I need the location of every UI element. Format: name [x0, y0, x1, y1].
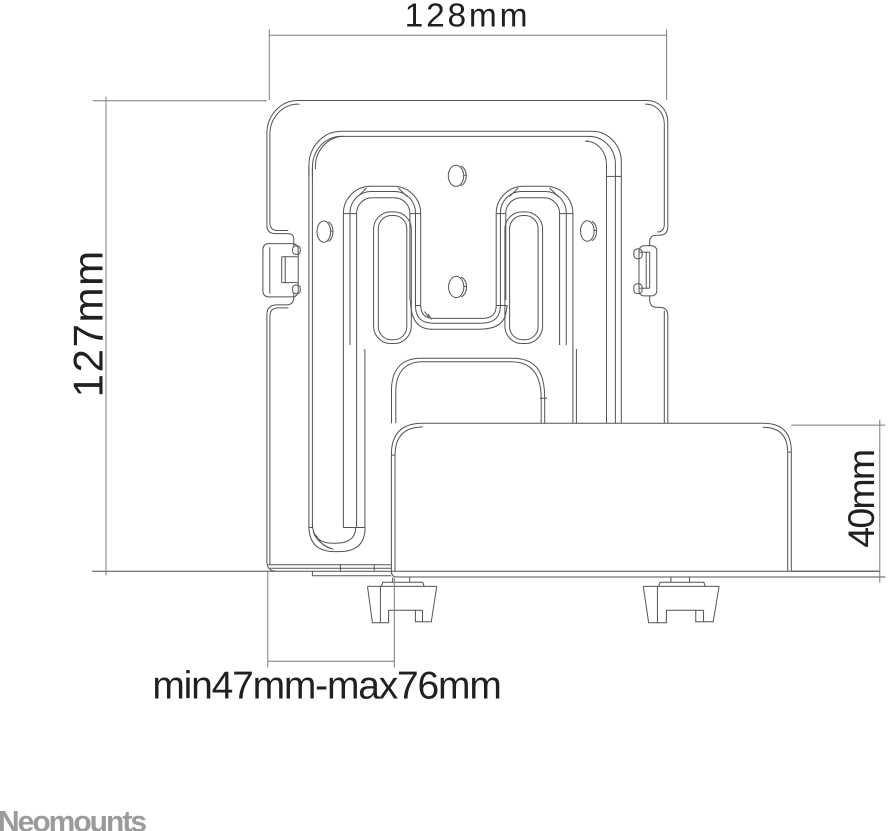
svg-text:40mm: 40mm: [840, 451, 882, 548]
svg-text:min47mm-max76mm: min47mm-max76mm: [152, 664, 500, 707]
svg-text:128mm: 128mm: [405, 0, 531, 35]
svg-text:127mm: 127mm: [65, 249, 112, 397]
svg-text:Neomounts: Neomounts: [0, 806, 146, 831]
